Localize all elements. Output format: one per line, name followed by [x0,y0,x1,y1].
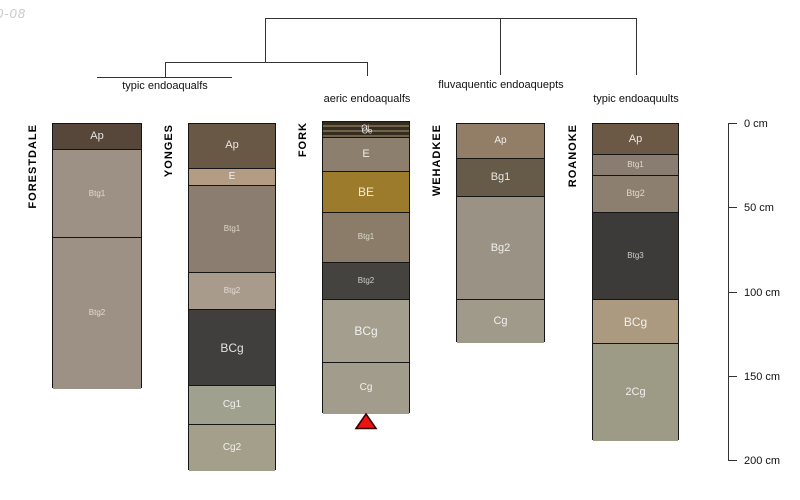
horizon-bcg: BCg [189,309,275,385]
horizon-ap: Ap [593,124,678,154]
horizon-btg2: Btg2 [593,175,678,212]
horizon-label: Btg1 [358,233,374,241]
horizon-bg1: Bg1 [457,158,544,197]
group-label-aeric-endoaqualfs: aeric endoaqualfs [324,93,411,105]
profile-name-fork: FORK [297,122,310,157]
dendrogram-branch-line [500,18,501,75]
horizon-label: Cg [360,383,373,393]
profile-name-yonges: YONGES [163,124,176,177]
horizon-label: BCg [624,316,647,328]
horizon-label: Ap [90,131,103,142]
horizon-cg: Cg [323,362,409,414]
profile-column-roanoke: ApBtg1Btg2Btg3BCg2Cg [592,123,679,440]
horizon-label: Ap [494,136,506,146]
horizon-label: Bg2 [491,243,511,254]
horizon-be: BE [323,171,409,211]
dendrogram-branch-line [165,62,166,77]
horizon-label: Btg1 [224,225,240,233]
horizon-btg2: Btg2 [53,237,141,389]
dendrogram-branch-line [265,18,266,63]
horizon-label: Cg [493,316,507,327]
horizon-label: Ap [629,134,642,145]
horizon-label: BCg [354,325,377,337]
profile-column-yonges: ApEBtg1Btg2BCgCg1Cg2 [188,123,276,470]
horizon-ap: Ap [53,124,141,149]
horizon-bcg: BCg [593,299,678,343]
depth-tick-label: 100 cm [744,287,780,299]
horizon-btg2: Btg2 [323,262,409,299]
horizon-oi-oe: OiOe [323,122,409,137]
horizon-btg3: Btg3 [593,212,678,300]
profile-column-forestdale: ApBtg1Btg2 [52,123,142,388]
horizon-label: E [362,149,369,160]
depth-tick [728,460,737,461]
group-label-typic-endoaquults: typic endoaquults [593,93,679,105]
horizon-btg1: Btg1 [189,185,275,273]
group-label-fluvaquentic-endoaquepts: fluvaquentic endoaquepts [438,79,563,91]
horizon-btg2: Btg2 [189,272,275,309]
depth-tick-label: 200 cm [744,455,780,467]
profile-name-forestdale: FORESTDALE [27,124,40,209]
horizon-bcg: BCg [323,299,409,361]
horizon-label: Btg2 [224,287,240,295]
profile-column-fork: OiOeEBEBtg1Btg2BCgCg [322,121,410,413]
depth-tick-label: 150 cm [744,371,780,383]
horizon-cg2: Cg2 [189,424,275,471]
horizon-e: E [189,168,275,185]
horizon-ap: Ap [457,124,544,158]
horizon-e: E [323,137,409,171]
horizon-btg1: Btg1 [53,149,141,237]
depth-tick [728,207,737,208]
profile-name-roanoke: ROANOKE [567,124,580,187]
red-triangle-marker [354,412,378,431]
horizon-label: 2Cg [625,387,645,398]
soil-profile-figure: 0-08 typic endoaqualfs aeric endoaqualfs… [0,0,800,500]
horizon-label: Btg1 [627,161,643,169]
dendrogram-branch-line [636,18,637,75]
horizon-label: Cg1 [223,400,241,410]
horizon-ap: Ap [189,124,275,168]
depth-tick-label: 0 cm [744,118,768,130]
depth-tick [728,292,737,293]
horizon-btg1: Btg1 [323,212,409,263]
horizon-label: E [229,172,236,182]
depth-tick [728,376,737,377]
horizon-label: BCg [220,342,243,354]
watermark-text: 0-08 [0,6,26,21]
horizon-cg1: Cg1 [189,385,275,424]
horizon-label: Oe [362,126,373,135]
dendrogram-branch-line [367,62,368,76]
horizon-label: Btg2 [89,309,105,317]
dendrogram-leaf-line [97,77,232,78]
horizon-label: BE [358,186,374,198]
profile-column-wehadkee: ApBg1Bg2Cg [456,123,545,342]
horizon-label: Bg1 [491,172,511,183]
horizon-label: Cg2 [223,443,241,453]
horizon-label: Btg3 [627,252,643,260]
depth-tick-label: 50 cm [744,202,774,214]
horizon-bg2: Bg2 [457,196,544,299]
depth-tick [728,123,737,124]
horizon-label: Btg2 [626,189,645,198]
dendrogram-branch-line [165,62,368,63]
group-label-typic-endoaqualfs: typic endoaqualfs [122,80,208,92]
horizon-label: Btg2 [358,277,374,285]
horizon-2cg: 2Cg [593,343,678,441]
profile-name-wehadkee: WEHADKEE [431,124,444,196]
dendrogram-root-line [265,18,637,19]
horizon-label: Btg1 [89,190,105,198]
horizon-cg: Cg [457,299,544,343]
horizon-btg1: Btg1 [593,154,678,174]
horizon-label: Ap [225,140,238,151]
